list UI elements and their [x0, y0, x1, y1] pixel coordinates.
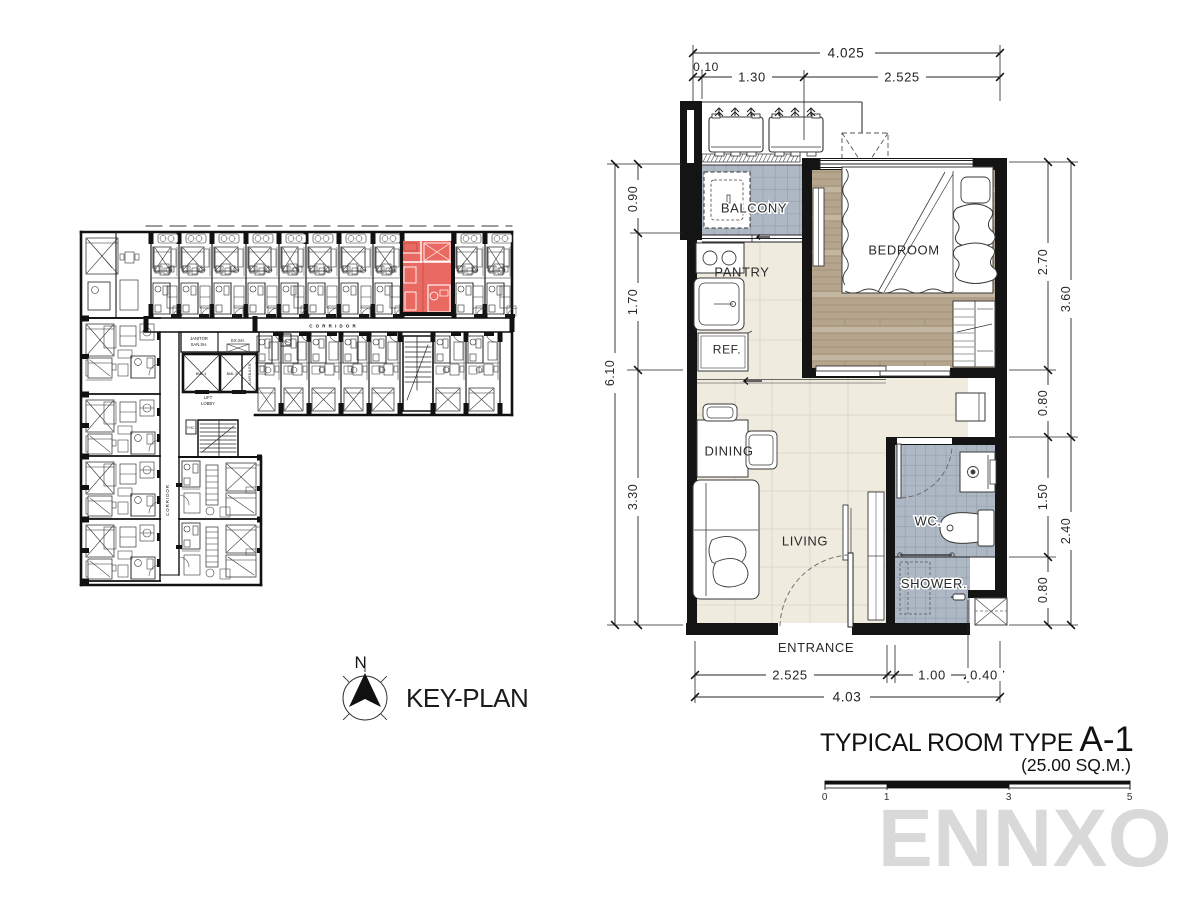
- svg-text:REF.: REF.: [713, 343, 741, 357]
- svg-text:BALCONY: BALCONY: [721, 201, 787, 216]
- svg-text:2.525: 2.525: [772, 668, 808, 683]
- svg-text:EX.SH.: EX.SH.: [231, 338, 245, 343]
- svg-text:1.00: 1.00: [918, 668, 946, 683]
- svg-text:BEDROOM: BEDROOM: [868, 243, 939, 258]
- svg-text:(25.00 SQ.M.): (25.00 SQ.M.): [1021, 755, 1131, 775]
- svg-text:2.70: 2.70: [1036, 249, 1050, 275]
- svg-text:0.80: 0.80: [1036, 390, 1050, 416]
- svg-text:C O R R I D O R: C O R R I D O R: [309, 324, 356, 329]
- svg-text:WC.: WC.: [914, 514, 941, 529]
- svg-text:LIFT: LIFT: [204, 395, 213, 400]
- svg-text:CORRIDOR: CORRIDOR: [165, 484, 170, 516]
- svg-text:LOBBY: LOBBY: [201, 401, 215, 406]
- svg-text:1.50: 1.50: [1036, 484, 1050, 510]
- svg-text:FHC: FHC: [187, 426, 195, 430]
- svg-text:ENNXO: ENNXO: [878, 793, 1172, 884]
- svg-text:SAN.SH.: SAN.SH.: [191, 342, 208, 347]
- svg-text:2.525: 2.525: [884, 70, 920, 85]
- svg-text:0: 0: [822, 792, 828, 803]
- svg-text:BML 1: BML 1: [196, 372, 207, 376]
- svg-text:3.60: 3.60: [1059, 286, 1073, 312]
- svg-text:2.40: 2.40: [1059, 518, 1073, 544]
- svg-text:0.80: 0.80: [1036, 577, 1050, 603]
- svg-text:BML 2: BML 2: [227, 372, 238, 376]
- svg-text:SHOWER.: SHOWER.: [901, 576, 967, 591]
- svg-text:DINING: DINING: [704, 444, 753, 459]
- svg-text:ENTRANCE: ENTRANCE: [778, 640, 854, 655]
- svg-text:0.40: 0.40: [970, 668, 998, 683]
- svg-text:4.03: 4.03: [833, 690, 862, 705]
- svg-text:4.025: 4.025: [828, 46, 865, 61]
- svg-text:6.10: 6.10: [603, 360, 617, 386]
- svg-text:0.10: 0.10: [693, 60, 719, 74]
- svg-text:PANTRY: PANTRY: [714, 265, 769, 280]
- svg-text:0.90: 0.90: [626, 186, 640, 212]
- svg-text:GARBAGE: GARBAGE: [248, 363, 252, 385]
- svg-text:3.30: 3.30: [626, 484, 640, 510]
- svg-text:1.30: 1.30: [738, 70, 766, 85]
- svg-text:N: N: [355, 653, 368, 672]
- svg-text:1.70: 1.70: [626, 289, 640, 315]
- svg-text:KEY-PLAN: KEY-PLAN: [406, 683, 528, 713]
- svg-text:JANITOR: JANITOR: [190, 336, 208, 341]
- svg-text:LIVING: LIVING: [782, 534, 828, 549]
- svg-text:FHC: FHC: [282, 339, 290, 344]
